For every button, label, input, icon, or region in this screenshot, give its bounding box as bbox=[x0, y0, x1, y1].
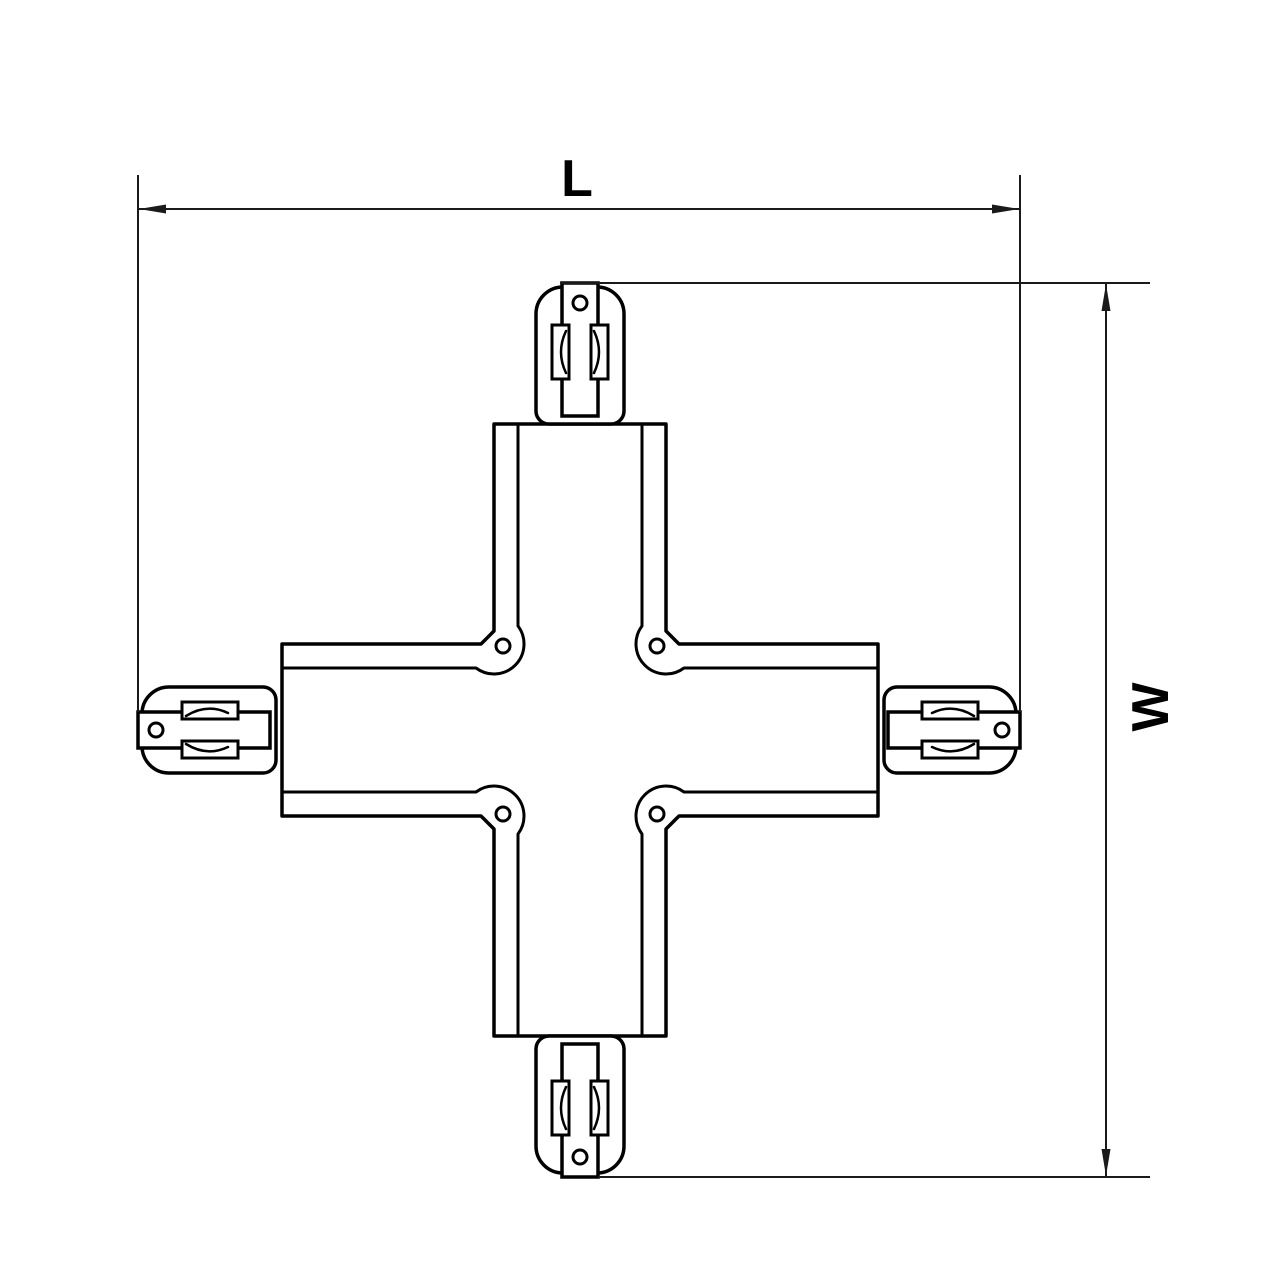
top-connector bbox=[536, 283, 624, 424]
cross-outline bbox=[282, 424, 878, 1036]
width-label: W bbox=[1122, 682, 1180, 732]
top-connector-screw bbox=[573, 296, 587, 310]
length-arrow-left-icon bbox=[139, 205, 166, 214]
corner-screw-top-right bbox=[650, 639, 664, 653]
left-connector-screw bbox=[149, 723, 163, 737]
x-connector-drawing: L W bbox=[0, 0, 1280, 1280]
right-connector-screw bbox=[995, 723, 1009, 737]
corner-screw-top-left bbox=[496, 639, 510, 653]
drawing-canvas: L W bbox=[0, 0, 1280, 1280]
cross-body bbox=[282, 424, 878, 1036]
length-label: L bbox=[561, 150, 593, 208]
corner-screw-bottom-right bbox=[650, 807, 664, 821]
corner-screw-bottom-left bbox=[496, 807, 510, 821]
right-connector-clip-bottom bbox=[922, 741, 978, 758]
width-arrow-bottom-icon bbox=[1102, 1149, 1111, 1176]
bottom-connector bbox=[536, 1036, 624, 1177]
left-connector bbox=[138, 687, 276, 773]
bottom-connector-screw bbox=[573, 1150, 587, 1164]
right-connector bbox=[884, 687, 1020, 773]
length-arrow-right-icon bbox=[992, 205, 1019, 214]
left-connector-clip-bottom bbox=[182, 741, 238, 758]
left-connector-clip-top bbox=[182, 702, 238, 719]
right-connector-clip-top bbox=[922, 702, 978, 719]
width-arrow-top-icon bbox=[1102, 284, 1111, 311]
